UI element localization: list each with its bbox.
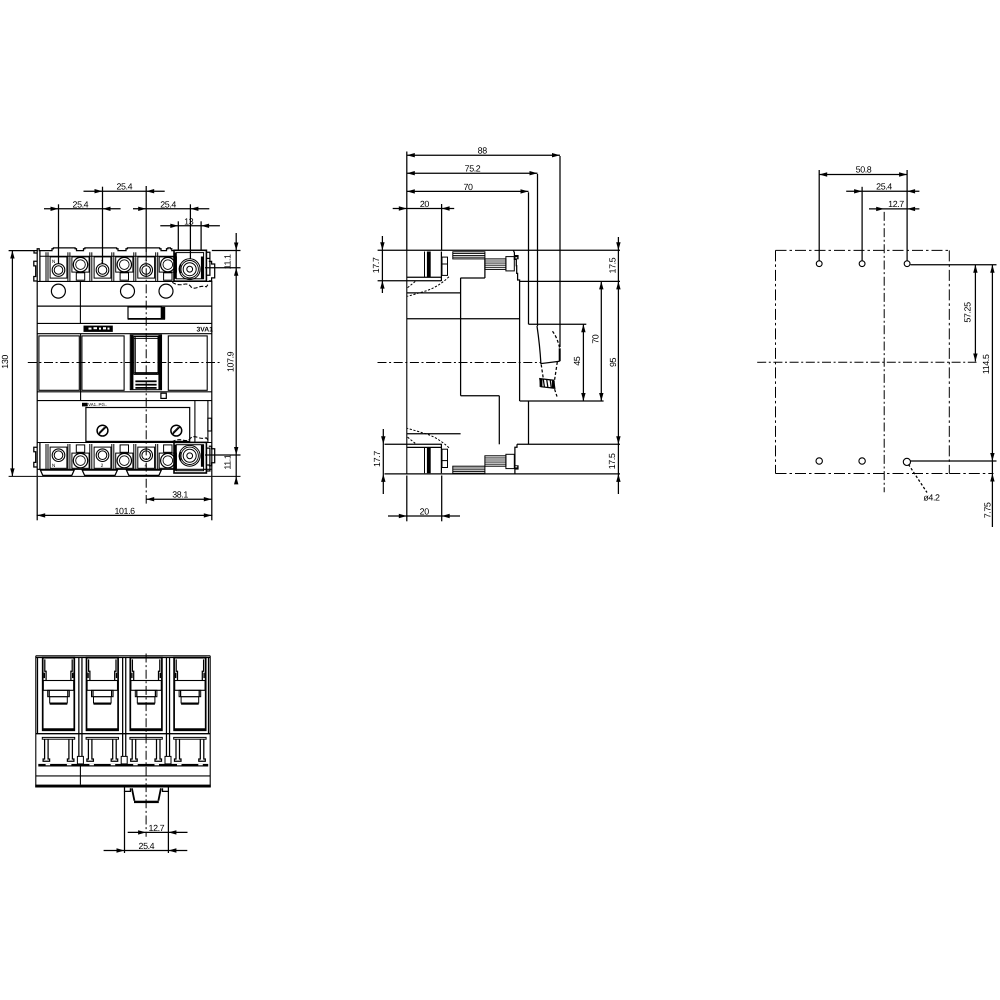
svg-text:12.7: 12.7 <box>149 823 165 833</box>
svg-text:7.75: 7.75 <box>983 502 993 518</box>
svg-text:17.5: 17.5 <box>607 453 617 469</box>
svg-text:20: 20 <box>420 199 430 209</box>
svg-text:38.1: 38.1 <box>172 490 188 500</box>
svg-text:101.6: 101.6 <box>114 506 135 516</box>
svg-text:130: 130 <box>0 355 10 369</box>
svg-text:25.4: 25.4 <box>73 199 89 209</box>
svg-text:50.8: 50.8 <box>856 164 872 174</box>
svg-text:3VA1: 3VA1 <box>196 327 213 334</box>
svg-text:25.4: 25.4 <box>116 182 132 192</box>
svg-text:25.4: 25.4 <box>160 199 176 209</box>
svg-text:107.9: 107.9 <box>225 351 235 372</box>
svg-text:70: 70 <box>463 182 473 192</box>
svg-text:25.4: 25.4 <box>139 841 155 851</box>
svg-text:2: 2 <box>101 463 104 469</box>
svg-text:17.7: 17.7 <box>371 257 381 273</box>
svg-text:12.7: 12.7 <box>888 199 904 209</box>
svg-text:ø4.2: ø4.2 <box>923 493 940 503</box>
svg-text:45: 45 <box>572 356 582 366</box>
svg-text:57.25: 57.25 <box>963 302 973 323</box>
svg-text:13: 13 <box>184 216 194 226</box>
svg-text:17.7: 17.7 <box>372 451 382 467</box>
svg-text:N: N <box>52 463 56 469</box>
svg-text:17.5: 17.5 <box>607 257 617 273</box>
svg-text:N: N <box>52 259 56 265</box>
svg-text:75.2: 75.2 <box>465 164 481 174</box>
svg-text:25.4: 25.4 <box>876 182 892 192</box>
svg-text:114.5: 114.5 <box>981 354 991 374</box>
svg-text:70: 70 <box>590 334 600 344</box>
svg-text:88: 88 <box>478 146 488 156</box>
svg-text:95: 95 <box>608 358 618 368</box>
svg-text:3VA1..PG..: 3VA1..PG.. <box>86 402 108 407</box>
svg-text:11.1: 11.1 <box>223 254 233 269</box>
svg-text:20: 20 <box>420 506 430 516</box>
svg-text:11.1: 11.1 <box>223 454 233 469</box>
